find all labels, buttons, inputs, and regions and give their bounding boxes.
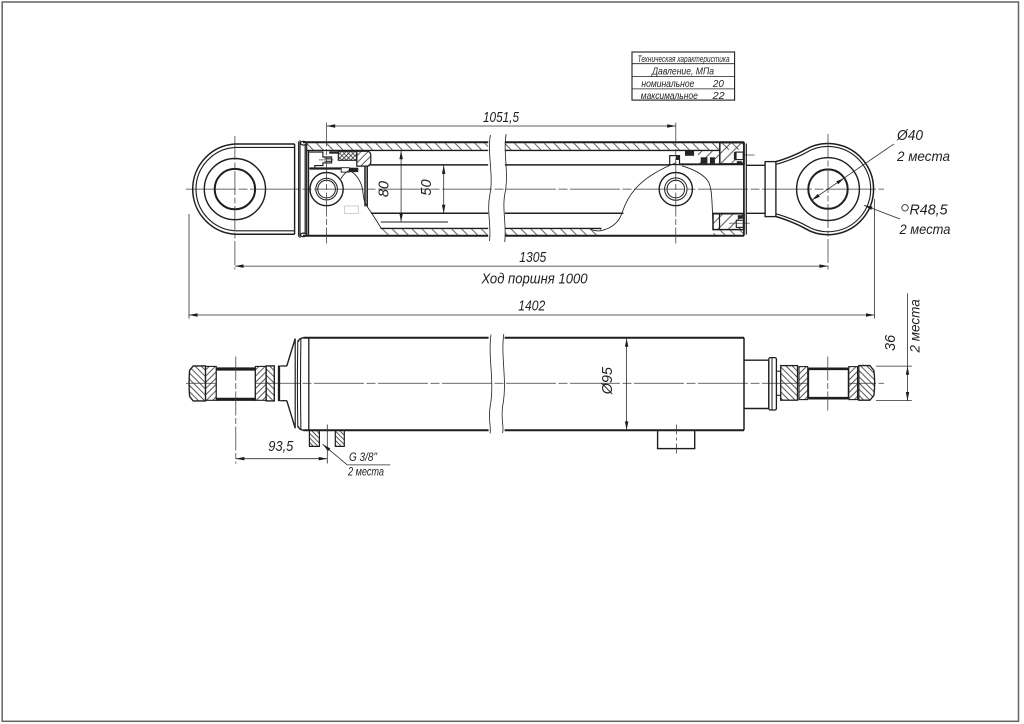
svg-text:93,5: 93,5: [268, 439, 294, 455]
svg-text:2 места: 2 места: [908, 299, 923, 354]
svg-text:50: 50: [419, 179, 435, 195]
svg-text:2 места: 2 места: [899, 221, 951, 237]
svg-text:1305: 1305: [519, 250, 547, 266]
svg-text:1402: 1402: [518, 298, 545, 314]
svg-text:Давление, МПа: Давление, МПа: [651, 66, 714, 77]
svg-text:максимальное: максимальное: [641, 91, 698, 102]
svg-text:1051,5: 1051,5: [483, 110, 520, 126]
svg-text:R48,5: R48,5: [910, 202, 949, 218]
svg-text:2 места: 2 места: [347, 465, 384, 479]
svg-text:G 3/8": G 3/8": [349, 450, 378, 464]
svg-text:22: 22: [712, 91, 725, 102]
svg-text:20: 20: [712, 79, 724, 90]
svg-text:номинальное: номинальное: [641, 79, 694, 90]
svg-text:2 места: 2 места: [896, 148, 950, 164]
svg-text:Техническая характеристика: Техническая характеристика: [638, 53, 730, 64]
svg-text:Ход поршня 1000: Ход поршня 1000: [481, 272, 588, 288]
svg-text:Ø40: Ø40: [896, 128, 923, 144]
svg-text:80: 80: [377, 181, 393, 197]
svg-text:Ø95: Ø95: [600, 366, 616, 395]
svg-text:36: 36: [883, 334, 899, 351]
